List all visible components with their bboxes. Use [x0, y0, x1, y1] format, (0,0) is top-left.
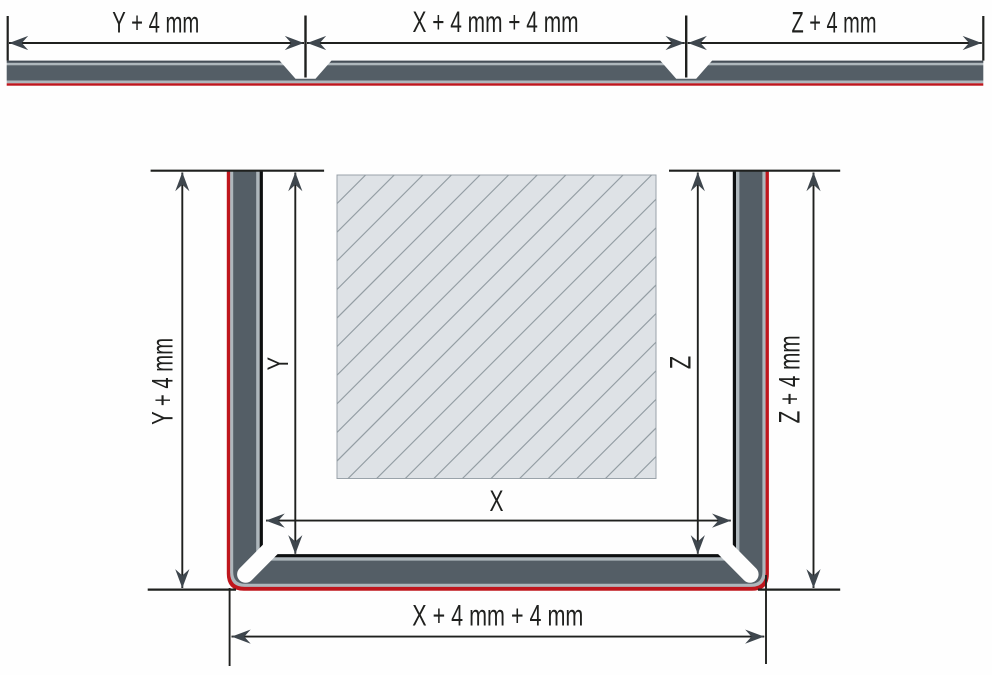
svg-text:Y + 4 mm: Y + 4 mm	[147, 338, 180, 425]
svg-text:Z + 4 mm: Z + 4 mm	[792, 7, 877, 40]
svg-text:Z: Z	[665, 356, 698, 370]
svg-text:Z + 4 mm: Z + 4 mm	[774, 335, 807, 423]
svg-text:Y + 4 mm: Y + 4 mm	[112, 7, 199, 40]
svg-text:Y: Y	[262, 357, 295, 371]
svg-text:X + 4 mm + 4 mm: X + 4 mm + 4 mm	[412, 600, 583, 633]
svg-text:X: X	[490, 485, 504, 518]
svg-text:X + 4 mm + 4 mm: X + 4 mm + 4 mm	[413, 6, 579, 39]
